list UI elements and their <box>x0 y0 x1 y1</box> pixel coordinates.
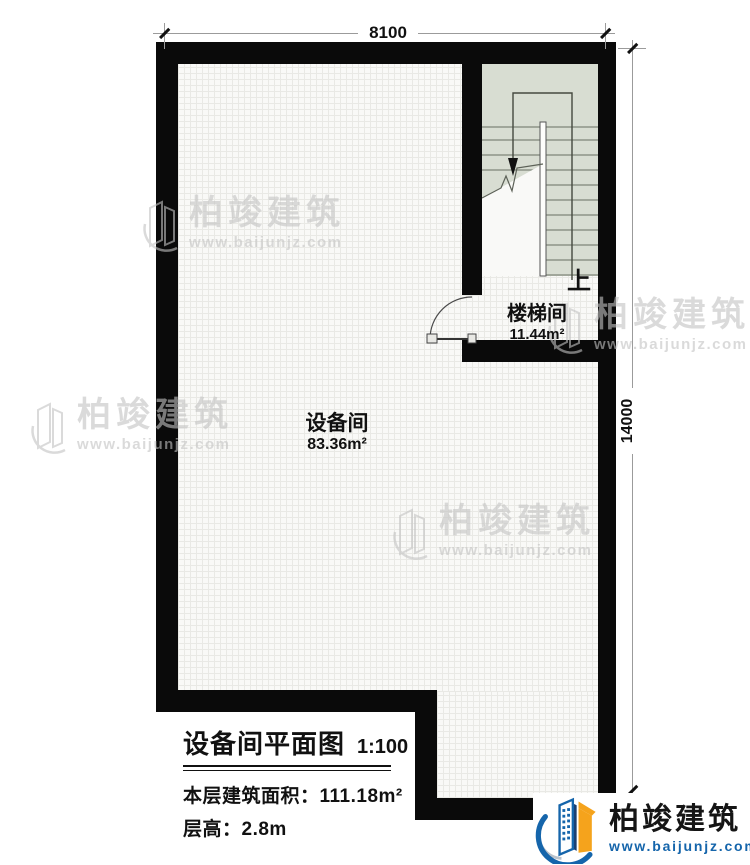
watermark-logo-icon <box>140 196 182 254</box>
watermark-name: 柏竣建筑 <box>439 504 595 538</box>
room-label-equipment: 设备间 83.36m² <box>272 412 402 455</box>
watermark-name: 柏竣建筑 <box>594 298 750 332</box>
wall-top <box>156 42 616 64</box>
dim-label-right: 14000 <box>619 388 637 454</box>
door-jamb <box>427 334 437 343</box>
room-label-stairwell: 楼梯间 11.44m² <box>478 303 596 343</box>
room-area: 11.44m² <box>478 326 596 343</box>
floor-height-label: 层高： <box>183 819 242 840</box>
watermark-url: www.baijunjz.com <box>77 436 233 453</box>
watermark-name: 柏竣建筑 <box>189 196 345 230</box>
room-area: 83.36m² <box>272 436 402 454</box>
door-swing-arc <box>430 297 472 339</box>
title-block: 设备间平面图 1:100 本层建筑面积：111.18m² 层高：2.8m <box>183 724 433 841</box>
wall-left <box>156 42 178 712</box>
room-name: 设备间 <box>272 412 402 436</box>
dim-extension-top-right <box>605 23 606 49</box>
watermark: 柏竣建筑 www.baijunjz.com <box>390 504 595 562</box>
floor-area-label: 本层建筑面积： <box>183 786 320 807</box>
watermark-logo-icon <box>28 398 70 456</box>
watermark-url: www.baijunjz.com <box>189 234 345 251</box>
plan-title: 设备间平面图 <box>183 724 345 761</box>
watermark-url: www.baijunjz.com <box>594 336 750 353</box>
dim-extension-top-left <box>164 23 165 49</box>
brand-logo: 柏竣建筑 www.baijunjz.com <box>533 793 750 865</box>
floor-height-line: 层高：2.8m <box>183 814 433 841</box>
watermark-name: 柏竣建筑 <box>77 398 233 432</box>
watermark: 柏竣建筑 www.baijunjz.com <box>140 196 345 254</box>
watermark-logo-icon <box>390 504 432 562</box>
title-row: 设备间平面图 1:100 <box>183 724 433 761</box>
brand-url: www.baijunjz.com <box>609 838 750 854</box>
dim-label-top: 8100 <box>358 24 418 42</box>
floor-plan-canvas: 8100 14000 柏竣建筑 www.baijunjz.com 柏竣建筑 ww… <box>0 0 750 865</box>
wall-right <box>598 42 616 820</box>
wall-stair-partition <box>462 64 482 295</box>
stair-railing <box>540 122 546 276</box>
floor-area-value: 111.18m² <box>320 786 403 807</box>
plan-scale: 1:100 <box>357 736 408 759</box>
watermark-url: www.baijunjz.com <box>439 542 595 559</box>
floor-area-line: 本层建筑面积：111.18m² <box>183 781 433 808</box>
baijun-logo-icon <box>533 794 607 864</box>
stair-up-label: 上 <box>567 270 591 294</box>
floor-equipment-room-extension <box>437 692 598 798</box>
wall-notch-horizontal <box>156 690 437 712</box>
title-underline <box>183 765 391 771</box>
brand-name: 柏竣建筑 <box>609 805 750 835</box>
floor-height-value: 2.8m <box>242 819 287 840</box>
door-jamb <box>468 334 476 343</box>
room-name: 楼梯间 <box>478 303 596 326</box>
watermark: 柏竣建筑 www.baijunjz.com <box>28 398 233 456</box>
